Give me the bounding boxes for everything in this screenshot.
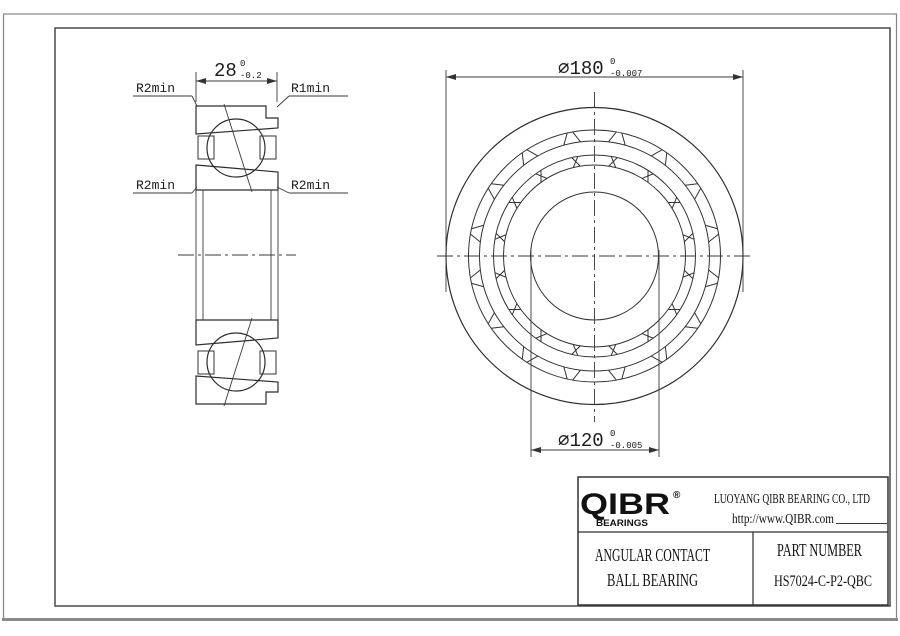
registered-mark: ®	[673, 490, 681, 501]
title-block: QIBR ® BEARINGS LUOYANG QIBR BEARING CO.…	[578, 477, 888, 605]
outer-ring-top-section	[196, 106, 278, 134]
label-r1min-top-right: R1min	[291, 81, 330, 96]
od-dim-value: ⌀180	[558, 58, 604, 80]
drawing-sheet: 28 0 -0.2 R2min R1min R2min R2min	[0, 0, 900, 636]
bore-dim-tol-lower: -0.005	[610, 441, 642, 451]
logo-subtitle: BEARINGS	[596, 518, 648, 529]
width-dim-tol-upper: 0	[240, 59, 245, 69]
bore-diameter-dimension: ⌀120 0 -0.005	[531, 250, 659, 457]
label-r2min-top-left: R2min	[136, 81, 175, 96]
od-dim-tol-lower: -0.007	[610, 69, 642, 79]
od-dim-tol-upper: 0	[610, 57, 615, 67]
part-number-label: PART NUMBER	[777, 540, 862, 560]
product-name-line1: ANGULAR CONTACT	[595, 545, 710, 565]
width-dimension: 28 0 -0.2	[196, 59, 277, 102]
section-view: 28 0 -0.2 R2min R1min R2min R2min	[133, 59, 348, 406]
width-dim-value: 28	[214, 60, 237, 82]
product-name-line2: BALL BEARING	[607, 570, 698, 590]
contact-angle-line-top	[224, 104, 252, 192]
contact-angle-line-bottom	[224, 318, 252, 406]
company-website: http://www.QIBR.com	[732, 511, 834, 526]
width-dim-tol-lower: -0.2	[240, 71, 262, 81]
logo-text: QIBR	[580, 488, 670, 521]
bore-dim-value: ⌀120	[558, 430, 604, 452]
label-r2min-mid-right: R2min	[291, 178, 330, 193]
part-number-value: HS7024-C-P2-QBC	[774, 573, 872, 590]
front-view: ⌀180 0 -0.007 ⌀120 0 -0.005	[437, 57, 752, 457]
label-r2min-mid-left: R2min	[136, 178, 175, 193]
company-name: LUOYANG QIBR BEARING CO., LTD	[714, 491, 870, 506]
bore-dim-tol-upper: 0	[610, 429, 615, 439]
outer-ring-bottom-section	[196, 376, 278, 404]
